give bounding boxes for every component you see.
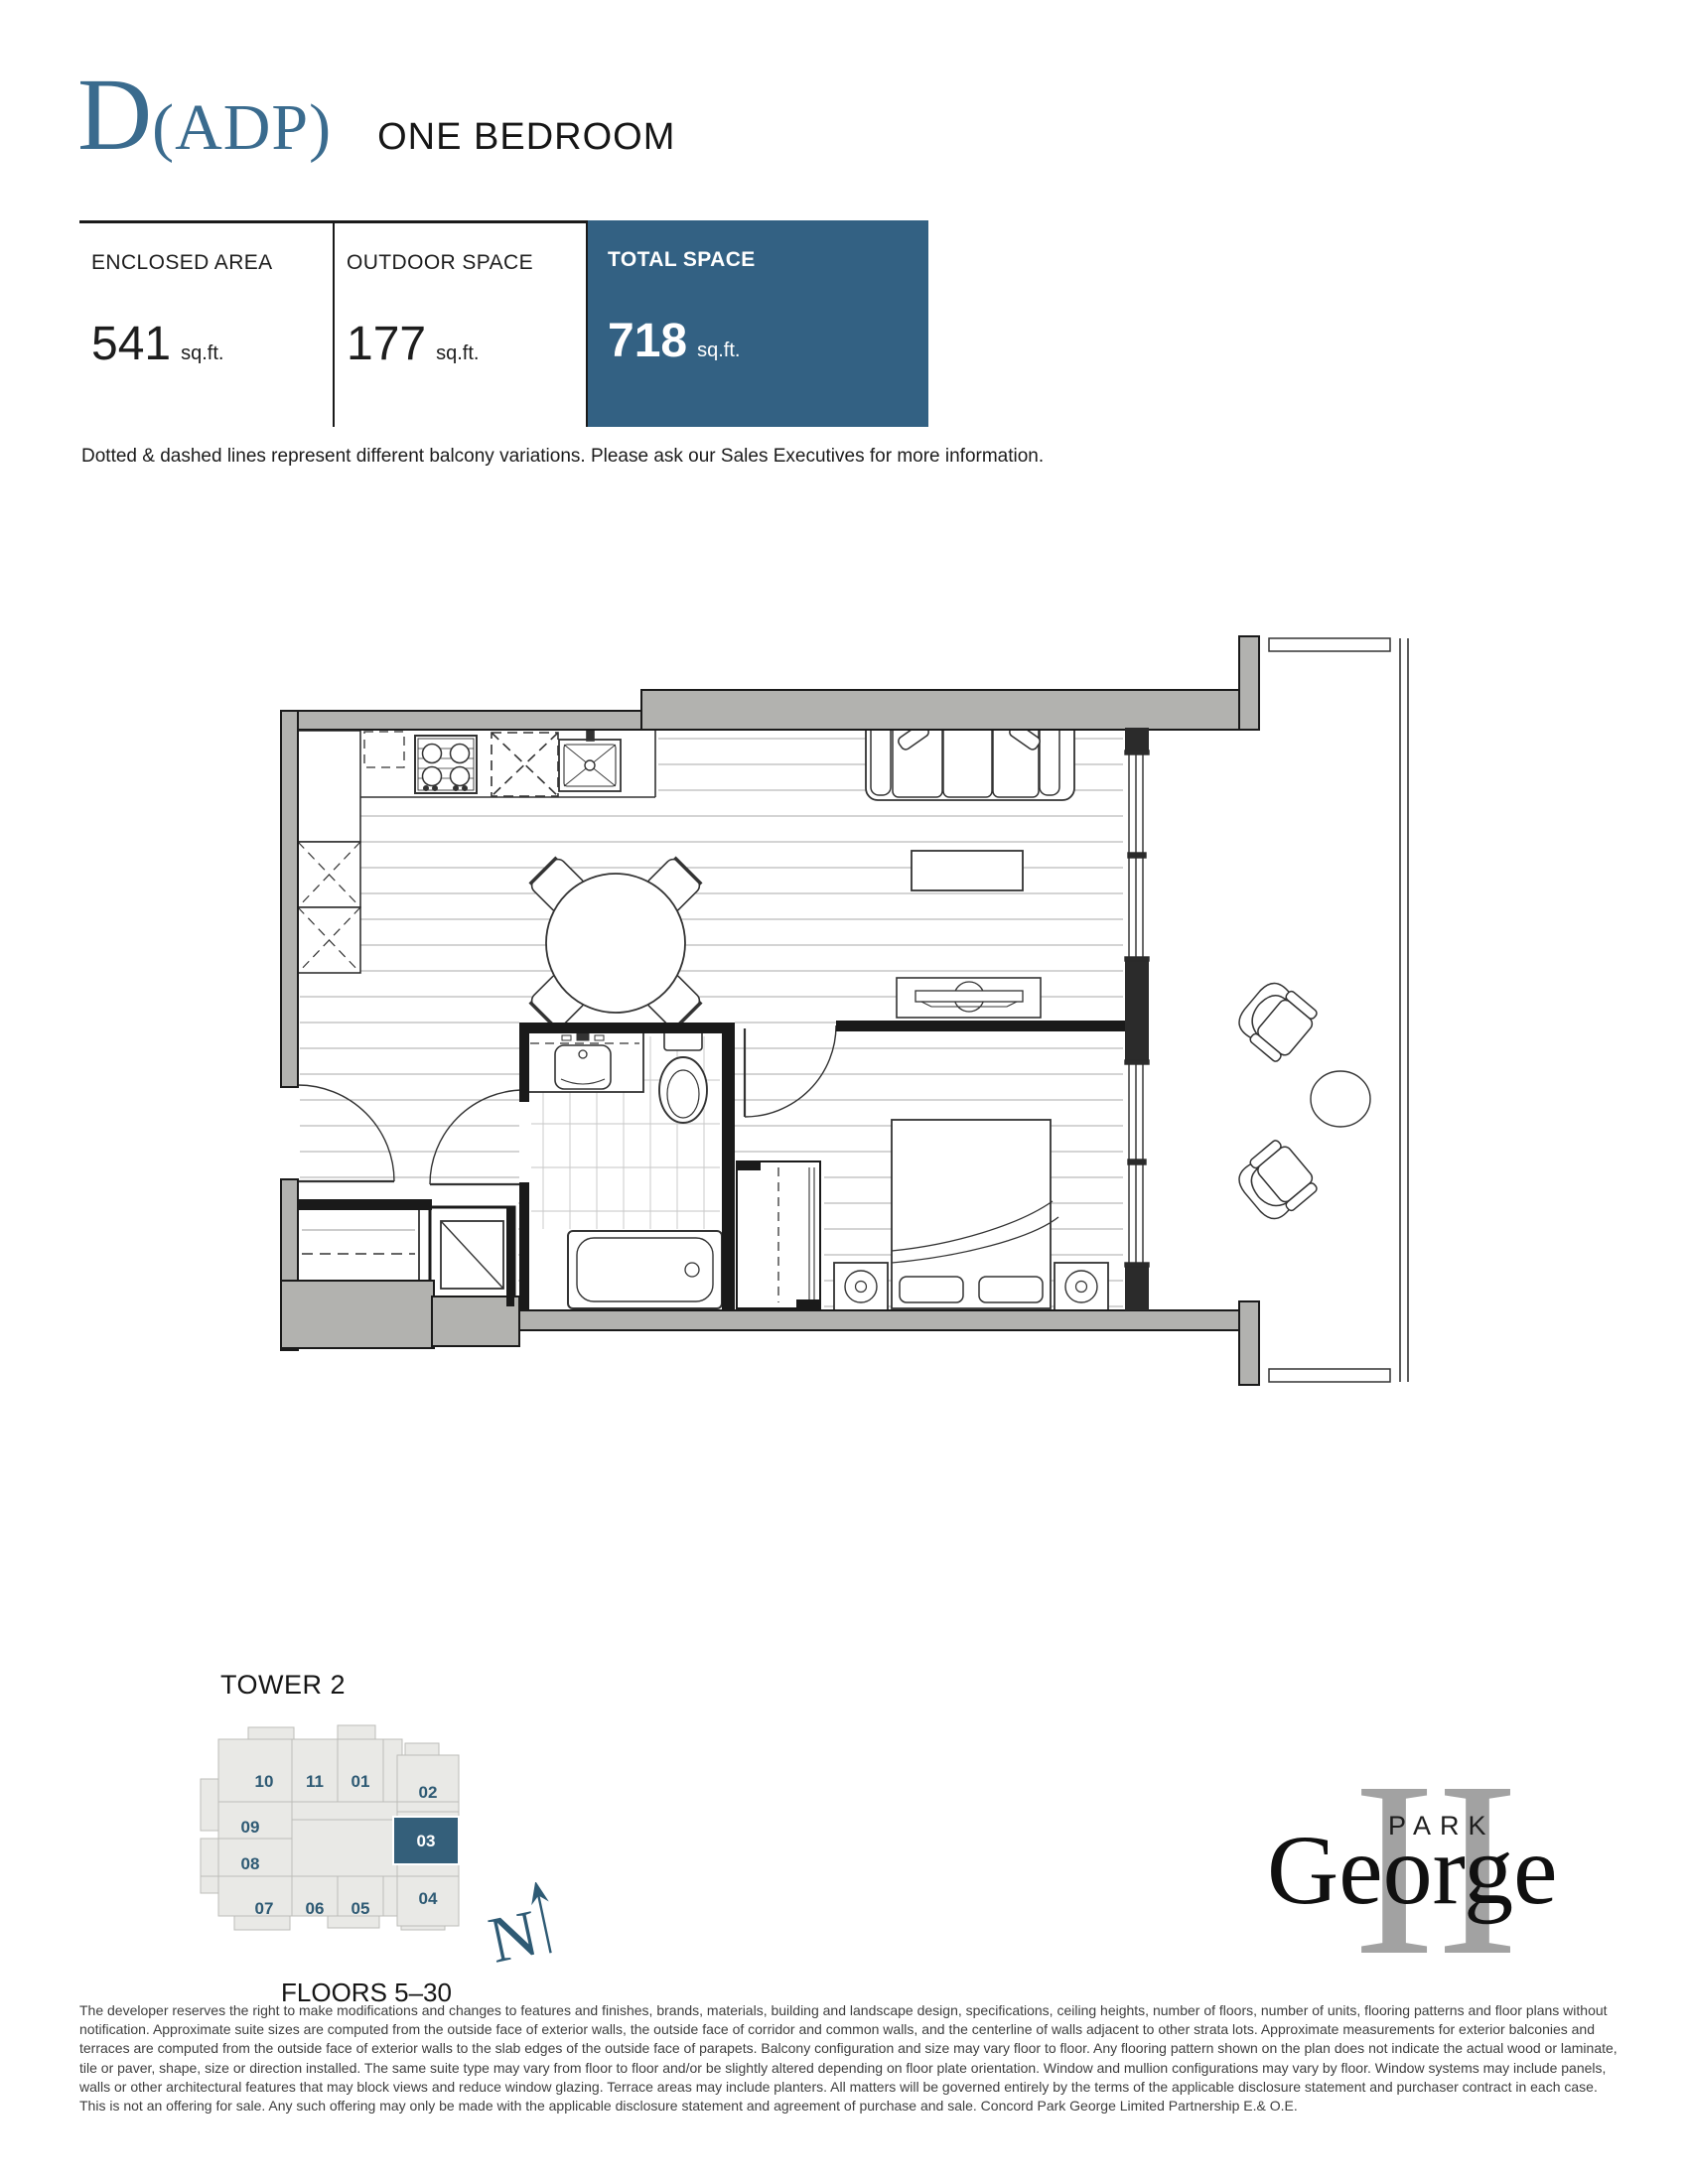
stat-label: OUTDOOR SPACE (347, 251, 586, 275)
stat-label: ENCLOSED AREA (91, 251, 333, 275)
unit-label-08: 08 (241, 1854, 260, 1873)
stat-value: 177 (347, 317, 426, 371)
area-stats-table: ENCLOSED AREA 541 sq.ft. OUTDOOR SPACE 1… (79, 220, 928, 427)
unit-label-04: 04 (419, 1889, 438, 1908)
stat-unit: sq.ft. (181, 342, 223, 365)
dining-table (546, 874, 685, 1013)
lounge-chair-1 (1231, 975, 1322, 1065)
coffee-table (912, 851, 1023, 890)
unit-label-07: 07 (255, 1899, 274, 1918)
unit-label-10: 10 (255, 1772, 274, 1791)
stat-enclosed-area: ENCLOSED AREA 541 sq.ft. (79, 220, 333, 427)
bed (892, 1120, 1058, 1308)
balcony-variation-note: Dotted & dashed lines represent differen… (81, 446, 1044, 468)
north-arrow: N (479, 1882, 573, 1977)
plan-suffix: (ADP) (152, 95, 332, 161)
compass-letter: N (483, 1896, 544, 1977)
stat-unit: sq.ft. (697, 340, 740, 362)
balcony-ledge-top (1269, 638, 1390, 651)
unit-label-05: 05 (352, 1899, 370, 1918)
laundry-closet (430, 1207, 514, 1306)
plan-type: ONE BEDROOM (377, 116, 675, 159)
bathtub (568, 1231, 722, 1308)
vanity-sink (526, 1032, 643, 1092)
unit-label-01: 01 (352, 1772, 370, 1791)
balcony (1231, 638, 1408, 1382)
balcony-ledge-bottom (1269, 1369, 1390, 1382)
unit-label-11: 11 (306, 1772, 324, 1791)
bedroom-closet (737, 1161, 820, 1308)
legal-disclaimer: The developer reserves the right to make… (79, 2001, 1620, 2116)
floorplan-page: D(ADP) ONE BEDROOM ENCLOSED AREA 541 sq.… (0, 0, 1688, 2184)
page-title: D(ADP) ONE BEDROOM (77, 64, 675, 167)
unit-label-03: 03 (417, 1832, 436, 1850)
balcony-table (1311, 1071, 1370, 1127)
stat-outdoor-space: OUTDOOR SPACE 177 sq.ft. (333, 220, 586, 427)
stat-total-space: TOTAL SPACE 718 sq.ft. (586, 220, 928, 427)
tower-keyplan: 10 11 01 02 09 08 03 07 06 05 04 (189, 1717, 477, 1951)
stat-unit: sq.ft. (436, 342, 479, 365)
stat-label: TOTAL SPACE (608, 248, 928, 272)
plan-letter: D (77, 64, 152, 167)
toilet (659, 1028, 707, 1123)
unit-label-06: 06 (306, 1899, 325, 1918)
park-george-logo: II PARK George (1261, 1745, 1638, 1969)
floor-plan-drawing (258, 606, 1420, 1400)
lounge-chair-2 (1231, 1137, 1322, 1227)
entry-closet (298, 1203, 419, 1285)
tv-console (897, 978, 1041, 1018)
unit-label-02: 02 (419, 1783, 438, 1802)
unit-label-09: 09 (241, 1818, 260, 1837)
dining-set (528, 856, 702, 1029)
cooktop (415, 736, 477, 793)
logo-george-text: George (1267, 1821, 1557, 1920)
tower-title: TOWER 2 (220, 1670, 346, 1701)
stat-value: 541 (91, 317, 171, 371)
stat-value: 718 (608, 314, 687, 368)
